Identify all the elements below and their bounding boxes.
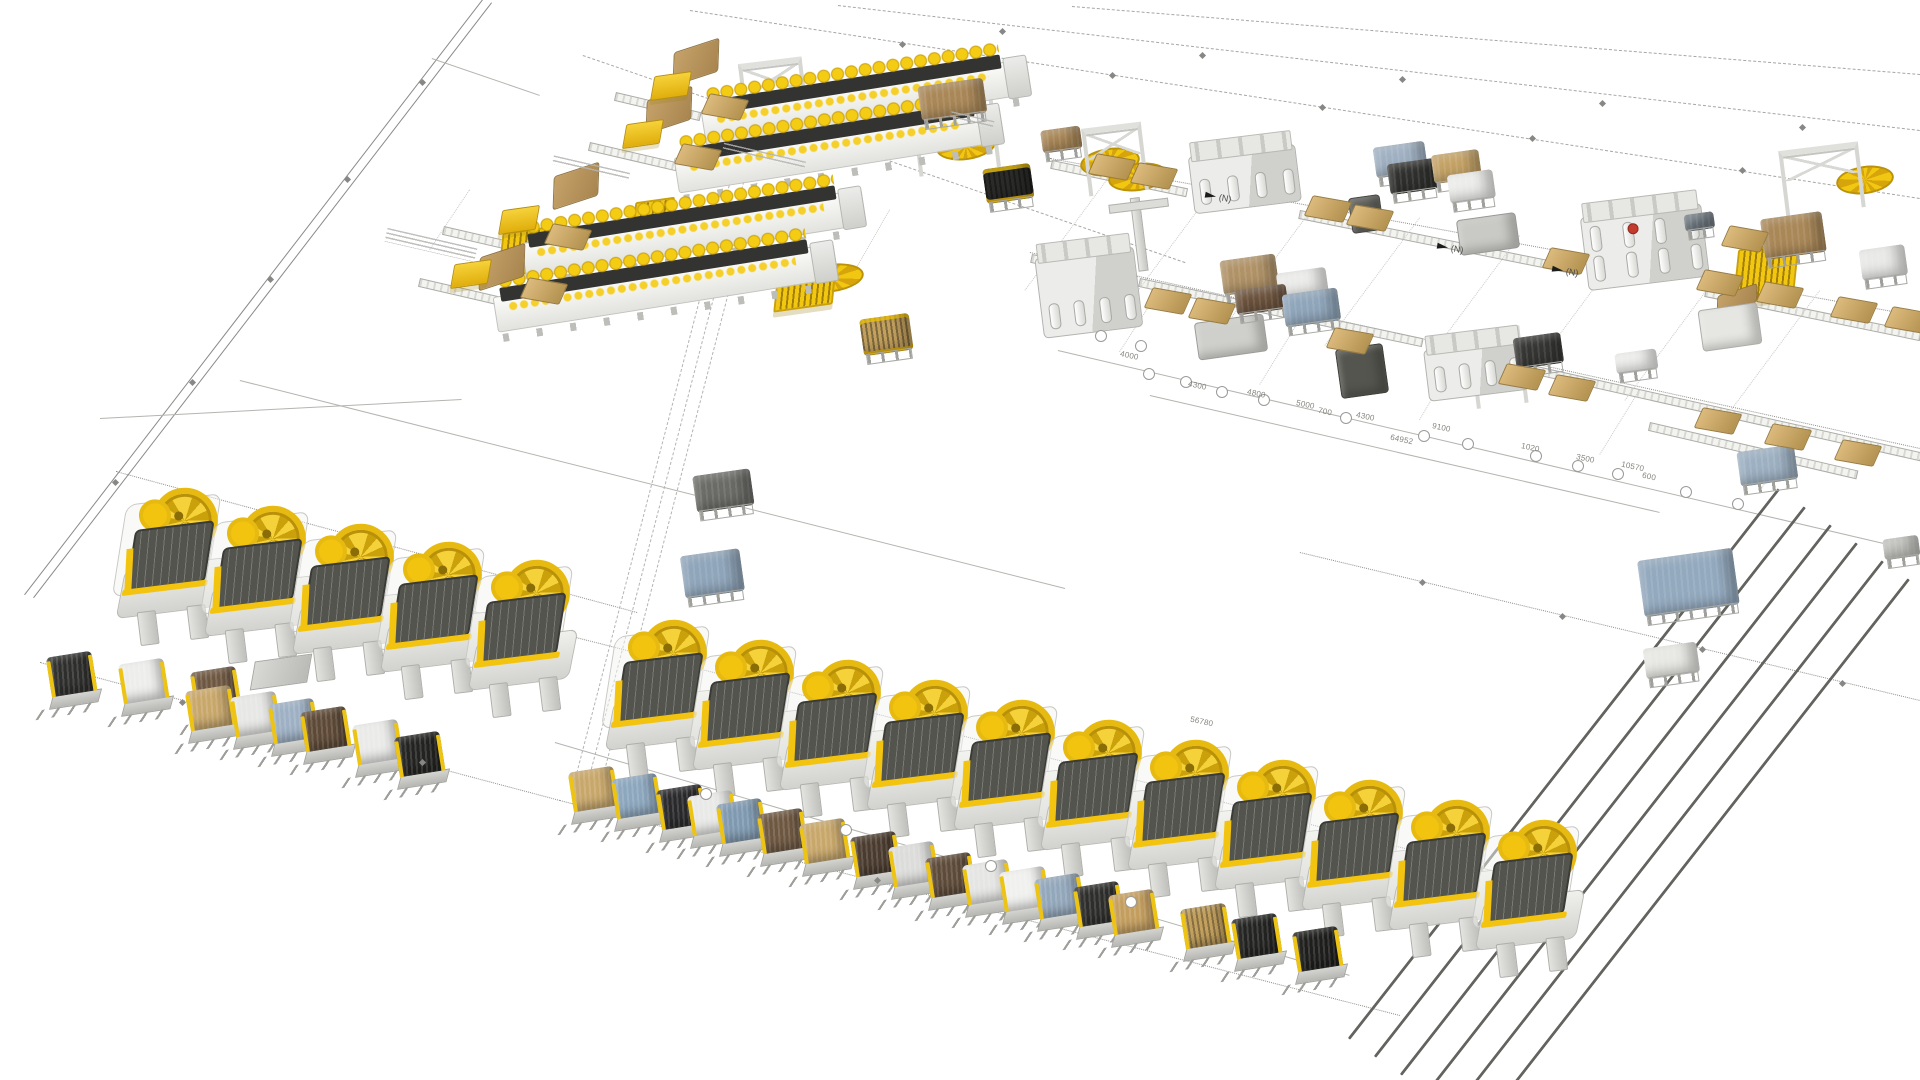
reference-balloon — [1418, 430, 1430, 442]
layout-line — [24, 0, 483, 595]
transport-rail — [1374, 506, 1806, 1058]
flow-arrow-icon — [1437, 243, 1449, 251]
grid-tick-marker — [1109, 72, 1116, 79]
pallet-stack — [1040, 125, 1084, 162]
grid-tick-marker — [1799, 124, 1806, 131]
pallet-stack — [1637, 548, 1741, 627]
pallet-stack — [1683, 211, 1716, 241]
fiber-bale — [1227, 912, 1287, 977]
dimension-label: 56780 — [1189, 716, 1213, 729]
reference-balloon — [700, 788, 712, 800]
pallet-stack — [1447, 169, 1498, 213]
layout-line — [1072, 6, 1920, 75]
reference-balloon — [1462, 438, 1474, 450]
gantry-crane — [1778, 141, 1865, 216]
baling-press — [1186, 130, 1302, 215]
dimension-label: 5000 — [1295, 399, 1315, 411]
fiber-opening-machine — [461, 564, 582, 724]
machine-box — [1456, 212, 1520, 256]
layout-line — [432, 58, 540, 96]
baling-press — [1033, 232, 1144, 338]
grid-tick-marker — [419, 79, 426, 86]
grid-tick-marker — [1399, 76, 1406, 83]
plant-layout-3d-viewport[interactable]: 4000430048005000700430064952910010203500… — [0, 0, 1920, 1080]
machine-box — [1697, 302, 1762, 352]
flow-marker-label: (N) — [1565, 266, 1579, 278]
pallet-stack — [982, 163, 1036, 213]
pallet-stack — [1614, 348, 1660, 384]
dimension-label: 700 — [1317, 407, 1332, 418]
reference-balloon — [985, 860, 997, 872]
fiber-bale — [114, 657, 174, 722]
flow-marker-label: (N) — [1450, 243, 1464, 255]
dimension-label: 4800 — [1246, 388, 1266, 400]
dimension-label: 1020 — [1520, 442, 1540, 454]
pallet-stack — [859, 313, 915, 366]
layout-line — [1300, 552, 1920, 701]
reference-balloon — [1732, 498, 1744, 510]
dimension-label: 64952 — [1389, 434, 1413, 447]
pallet-stack — [680, 548, 747, 608]
reference-balloon — [1143, 368, 1155, 380]
pallet-stack — [1736, 444, 1800, 496]
grid-tick-marker — [267, 276, 274, 283]
fiber-bale — [296, 705, 356, 770]
grid-tick-marker — [1529, 135, 1536, 142]
grid-tick-marker — [1559, 613, 1566, 620]
layout-line — [100, 399, 462, 419]
machine-leg — [1409, 922, 1432, 958]
reference-balloon — [1216, 386, 1228, 398]
reference-balloon — [840, 824, 852, 836]
fiber-bale — [1288, 925, 1348, 990]
fiber-opening-machine — [1468, 824, 1589, 984]
grid-tick-marker — [1319, 104, 1326, 111]
grid-tick-marker — [1739, 167, 1746, 174]
grid-tick-marker — [1199, 52, 1206, 59]
grid-tick-marker — [1419, 579, 1426, 586]
dimension-label: 4300 — [1187, 380, 1207, 392]
reference-balloon — [1340, 412, 1352, 424]
machine-leg — [489, 682, 512, 718]
machine-leg — [626, 742, 649, 778]
flow-arrow-icon — [1552, 266, 1564, 274]
reference-balloon — [1125, 896, 1137, 908]
dimension-label: 600 — [1641, 472, 1656, 483]
dimension-label: 9100 — [1431, 422, 1451, 434]
tilt-feeder — [622, 119, 664, 149]
machine-leg — [974, 822, 997, 858]
dimension-label: 10570 — [1620, 461, 1644, 474]
grid-tick-marker — [344, 176, 351, 183]
pallet-stack — [1760, 211, 1828, 269]
fiber-bale — [42, 650, 102, 715]
flow-marker-label: (N) — [1218, 192, 1232, 204]
machine-end-cabinet — [837, 185, 867, 230]
pallet-stack — [1858, 244, 1909, 290]
pallet-stack — [692, 468, 756, 522]
machine-leg — [1545, 936, 1568, 972]
reference-balloon — [1095, 330, 1107, 342]
grid-tick-marker — [1839, 680, 1846, 687]
machine-end-cabinet — [809, 239, 839, 284]
grid-tick-marker — [112, 479, 119, 486]
grid-tick-marker — [999, 28, 1006, 35]
pallet-base — [1687, 226, 1714, 241]
flow-arrow-icon — [1205, 192, 1217, 200]
reference-balloon — [1135, 340, 1147, 352]
machine-leg — [401, 664, 424, 700]
machine-leg — [225, 628, 248, 664]
machine-leg — [1496, 942, 1519, 978]
layout-line — [1599, 389, 1640, 455]
fiber-bale — [1176, 902, 1236, 967]
dimension-label: 4000 — [1119, 350, 1139, 362]
pallet-stack — [1642, 641, 1701, 688]
machine-leg — [1235, 882, 1258, 918]
grid-tick-marker — [1699, 646, 1706, 653]
pallet-stack — [1882, 535, 1920, 570]
machine-leg — [313, 646, 336, 682]
machine-leg — [137, 610, 160, 646]
grid-tick-marker — [1599, 100, 1606, 107]
reference-balloon — [1612, 468, 1624, 480]
machine-leg — [538, 676, 561, 712]
baling-press — [1421, 324, 1528, 402]
reference-balloon — [1680, 486, 1692, 498]
